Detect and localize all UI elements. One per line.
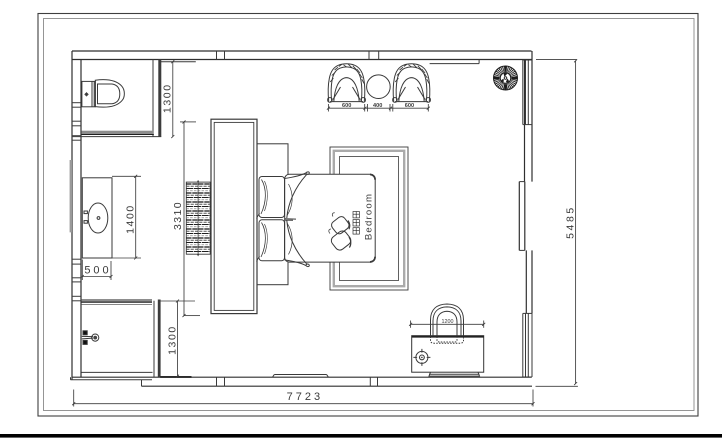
svg-text:600: 600 <box>342 103 351 109</box>
svg-text:3310: 3310 <box>172 201 184 230</box>
svg-text:Bedroom: Bedroom <box>364 193 375 240</box>
svg-text:1300: 1300 <box>162 83 174 113</box>
svg-text:500: 500 <box>84 265 111 277</box>
svg-text:5485: 5485 <box>565 205 577 239</box>
svg-text:400: 400 <box>373 103 382 109</box>
svg-text:600: 600 <box>405 103 414 109</box>
svg-text:1300: 1300 <box>166 325 178 355</box>
svg-text:7723: 7723 <box>287 391 323 403</box>
svg-text:1400: 1400 <box>125 204 137 234</box>
svg-text:1200: 1200 <box>442 319 454 325</box>
